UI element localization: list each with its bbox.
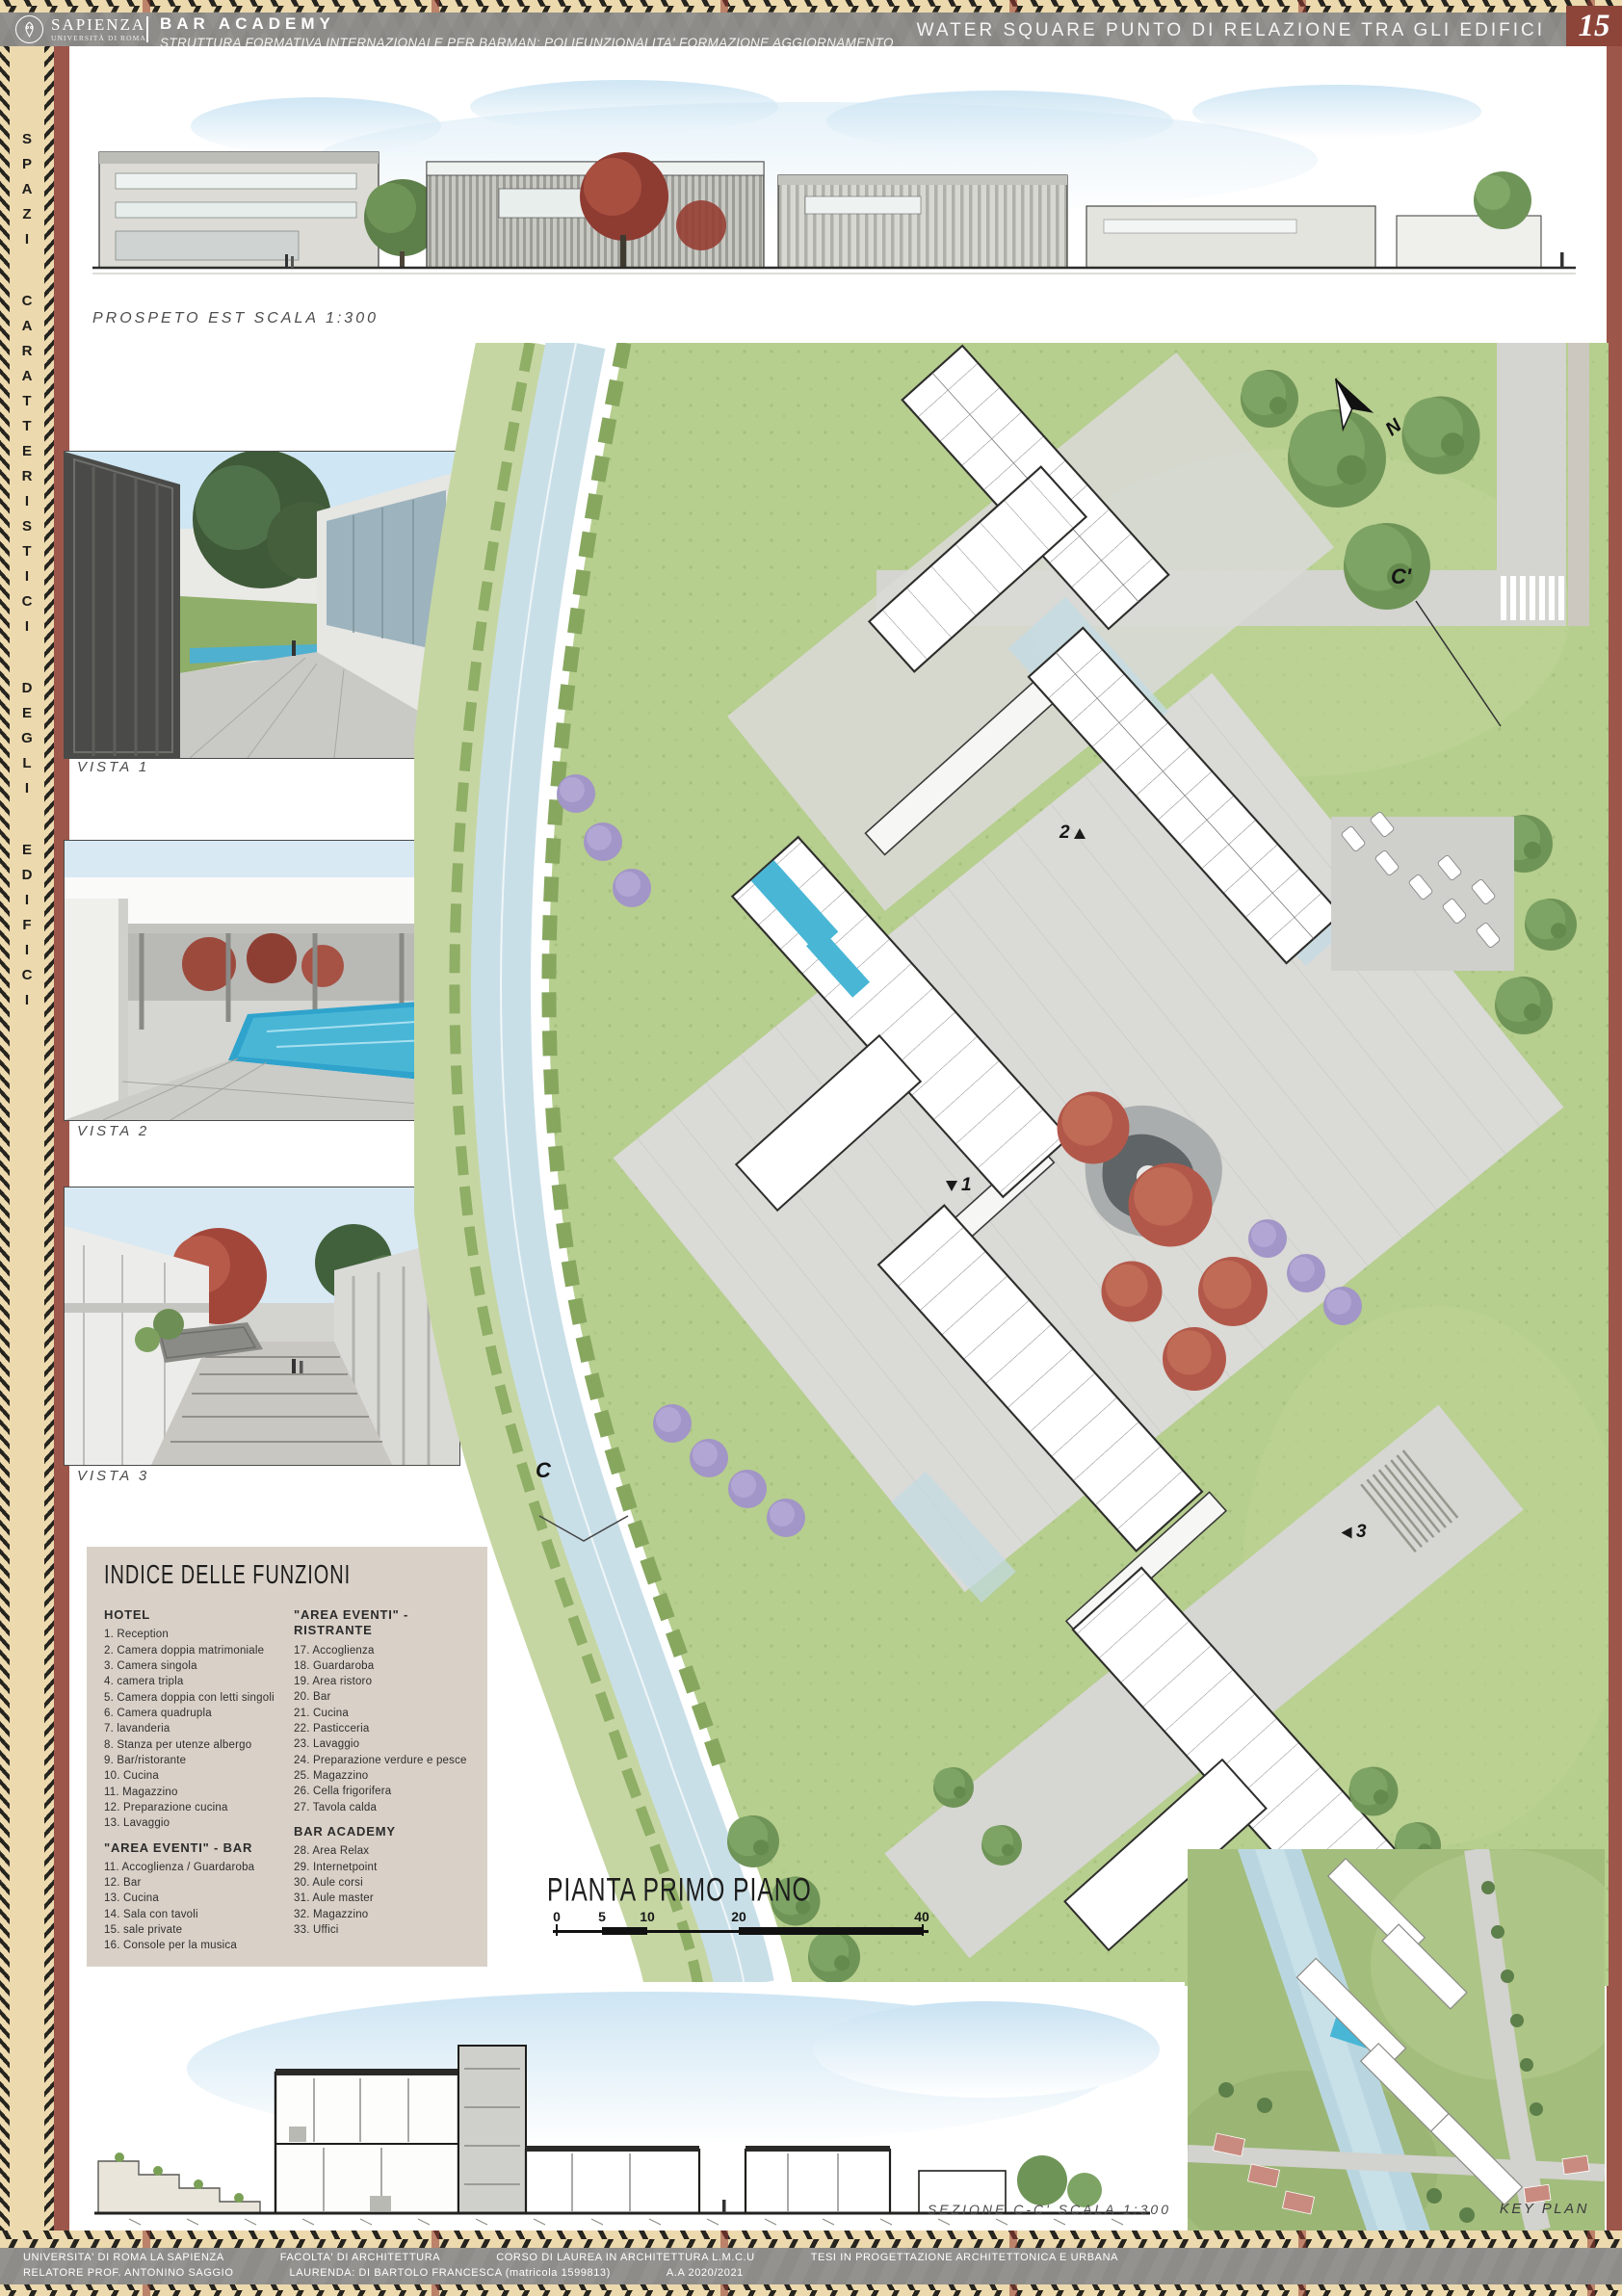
view-marker-number: 2 [1060, 822, 1070, 844]
footer-line-2: RELATORE PROF. ANTONINO SAGGIOLAURENDA: … [23, 2267, 744, 2279]
index-heading: "AREA EVENTI" - BAR [104, 1840, 280, 1856]
border-top [0, 0, 1622, 13]
list-item: 6. Camera quadrupla [104, 1706, 280, 1721]
north-arrow-icon [1321, 374, 1373, 433]
scale-tickmark [556, 1924, 558, 1936]
index-column-1: HOTEL 1. Reception2. Camera doppia matri… [104, 1599, 280, 1954]
sidebar: SPAZI CARATTERISTICI DEGLI EDIFICI [0, 46, 54, 2231]
vista-3-label: VISTA 3 [77, 1468, 149, 1484]
view-marker-2: 2 [1060, 822, 1086, 844]
index-items: 1. Reception2. Camera doppia matrimonial… [104, 1627, 280, 1831]
list-item: 12. Bar [104, 1875, 280, 1891]
logo-subtitle: UNIVERSITÀ DI ROMA [51, 35, 146, 42]
index-heading: HOTEL [104, 1607, 280, 1623]
scale-tick-0: 0 [553, 1909, 561, 1924]
sapienza-owl-icon [15, 15, 43, 43]
list-item: 11. Accoglienza / Guardaroba [104, 1860, 280, 1875]
vista-1-label: VISTA 1 [77, 759, 149, 775]
presentation-board: SAPIENZA UNIVERSITÀ DI ROMA BAR ACADEMY … [0, 0, 1622, 2296]
index-group-area-eventi-bar: "AREA EVENTI" - BAR 11. Accoglienza / Gu… [104, 1840, 280, 1954]
view-marker-3: 3 [1341, 1522, 1367, 1543]
scale-tick-5: 5 [598, 1909, 606, 1924]
scale-tickmark [922, 1924, 924, 1936]
list-item: 11. Magazzino [104, 1785, 280, 1800]
view-marker-number: 1 [961, 1175, 972, 1196]
list-item: 12. Preparazione cucina [104, 1800, 280, 1815]
list-item: FACOLTA' DI ARCHITETTURA [280, 2252, 440, 2263]
elevation-label: PROSPETO EST SCALA 1:300 [92, 310, 379, 327]
list-item: 2. Camera doppia matrimoniale [104, 1643, 280, 1658]
site-plan-drawing [414, 343, 1609, 1986]
header-divider [146, 16, 148, 42]
list-item: A.A 2020/2021 [667, 2267, 744, 2279]
footer-line-1: UNIVERSITA' DI ROMA LA SAPIENZAFACOLTA' … [23, 2252, 1118, 2263]
view-marker-1: 1 [946, 1175, 972, 1196]
scale-bar: 0 5 10 20 40 [553, 1909, 929, 1947]
header: SAPIENZA UNIVERSITÀ DI ROMA BAR ACADEMY … [0, 13, 1622, 46]
elevation-panel: PROSPETO EST SCALA 1:300 [71, 46, 1607, 343]
header-titles: BAR ACADEMY STRUTTURA FORMATIVA INTERNAZ… [160, 14, 925, 50]
list-item: RELATORE PROF. ANTONINO SAGGIO [23, 2267, 234, 2279]
list-item: UNIVERSITA' DI ROMA LA SAPIENZA [23, 2252, 224, 2263]
section-marker-c-prime: C' [1391, 564, 1411, 589]
list-item: TESI IN PROGETTAZIONE ARCHITETTONICA E U… [811, 2252, 1118, 2263]
list-item: 13. Lavaggio [104, 1815, 280, 1831]
section-panel: SEZIONE C-C' SCALA 1:300 [71, 1982, 1185, 2231]
vista-2-image [64, 840, 460, 1121]
index-items: 11. Accoglienza / Guardaroba12. Bar13. C… [104, 1860, 280, 1954]
list-item: 13. Cucina [104, 1891, 280, 1906]
list-item: CORSO DI LAUREA IN ARCHITETTURA L.M.C.U [496, 2252, 755, 2263]
plan-title: PIANTA PRIMO PIANO [547, 1870, 812, 1910]
keyplan-label: KEY PLAN [1500, 2201, 1589, 2217]
sidebar-vertical-text: SPAZI CARATTERISTICI DEGLI EDIFICI [19, 131, 36, 1017]
scale-tick-20: 20 [731, 1909, 746, 1924]
scale-bar-segment [602, 1927, 647, 1935]
header-right-title: WATER SQUARE PUNTO DI RELAZIONE TRA GLI … [917, 20, 1545, 41]
list-item: LAURENDA: DI BARTOLO FRANCESCA (matricol… [290, 2267, 611, 2279]
footer: UNIVERSITA' DI ROMA LA SAPIENZAFACOLTA' … [0, 2248, 1622, 2284]
page-title: BAR ACADEMY [160, 14, 925, 34]
list-item: 14. Sala con tavoli [104, 1907, 280, 1922]
logo-title: SAPIENZA [51, 16, 146, 33]
list-item: 8. Stanza per utenze albergo [104, 1737, 280, 1753]
keyplan-image: KEY PLAN [1188, 1849, 1605, 2231]
index-title: INDICE DELLE FUNZIONI [104, 1560, 452, 1591]
section-marker-c: C [536, 1458, 551, 1483]
sapienza-logo: SAPIENZA UNIVERSITÀ DI ROMA [15, 15, 146, 43]
list-item: 10. Cucina [104, 1768, 280, 1784]
north-arrow: N [1321, 374, 1401, 439]
view-marker-triangle-icon [946, 1181, 957, 1191]
scale-bar-segment [739, 1927, 922, 1935]
page-number-box: 15 [1566, 6, 1622, 46]
list-item: 3. Camera singola [104, 1658, 280, 1674]
view-marker-number: 3 [1356, 1522, 1367, 1543]
section-drawing [71, 1982, 1185, 2231]
list-item: 7. lavanderia [104, 1721, 280, 1736]
scale-tick-10: 10 [640, 1909, 655, 1924]
index-group-hotel: HOTEL 1. Reception2. Camera doppia matri… [104, 1607, 280, 1832]
view-marker-triangle-icon [1074, 828, 1086, 839]
scale-tick-40: 40 [914, 1909, 929, 1924]
list-item: 4. camera tripla [104, 1674, 280, 1689]
vista-1-image [64, 451, 460, 759]
elevation-drawing [85, 73, 1587, 304]
list-item: 5. Camera doppia con letti singoli [104, 1690, 280, 1706]
view-marker-triangle-icon [1342, 1526, 1352, 1538]
vista-2-label: VISTA 2 [77, 1123, 149, 1139]
prefooter-border [0, 2231, 1622, 2248]
sidebar-maroon-stripe [54, 46, 69, 2231]
list-item: 9. Bar/ristorante [104, 1753, 280, 1768]
list-item: 1. Reception [104, 1627, 280, 1642]
border-bottom [0, 2284, 1622, 2296]
list-item: 15. sale private [104, 1922, 280, 1938]
page-number: 15 [1579, 9, 1610, 44]
list-item: 16. Console per la musica [104, 1938, 280, 1953]
right-border-stripe [1607, 46, 1622, 2231]
vista-3-image [64, 1187, 460, 1466]
section-label: SEZIONE C-C' SCALA 1:300 [928, 2202, 1171, 2217]
